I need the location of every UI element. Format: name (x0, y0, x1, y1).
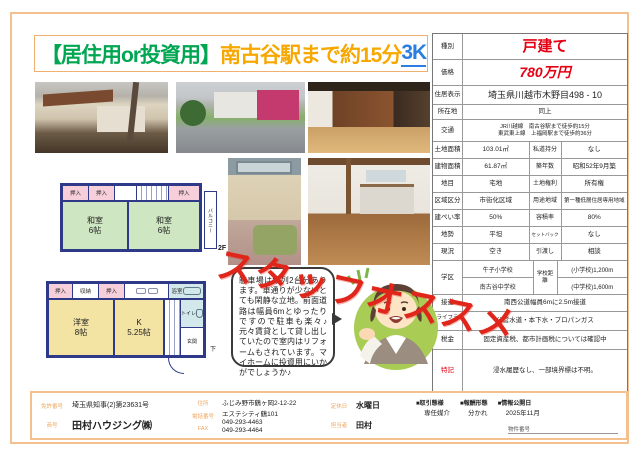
spec-status-label: 現況 (433, 244, 463, 260)
spec-zoning-value: 市街化区域 (463, 193, 530, 209)
spec-setback-value: なし (562, 227, 628, 243)
spec-far-label: 容積率 (530, 210, 562, 226)
floorplan-1f: 押入 収納 押入 浴室 洋室 8帖 K 5.25帖 (46, 281, 206, 358)
sink-icon (136, 288, 146, 294)
spec-land-label: 土地面積 (433, 142, 463, 158)
spec-address-value: 埼玉県川越市木野目498 - 10 (463, 86, 627, 104)
spec-location-label: 所在地 (433, 105, 463, 119)
company-label: 商号 (36, 421, 68, 429)
floor-shape (308, 127, 430, 153)
agency-address-line1: ふじみ野市鶴ヶ岡2-12-22 (222, 397, 322, 407)
agency-fax: 049-293-4464 (222, 427, 322, 434)
spec-road-share-value: なし (562, 142, 628, 158)
house-shape (214, 92, 258, 118)
spec-type-value: 戸建て (463, 34, 627, 59)
spec-handover-value: 相談 (562, 244, 628, 260)
pink-house-shape (257, 90, 299, 120)
title-station-segment: 南古谷駅まで約15分 (220, 39, 401, 69)
beam-shape (308, 158, 430, 165)
roof-shape (43, 90, 113, 107)
agency-left-values: 埼玉県知事(2)第23631号 田村ハウジング㈱ (68, 396, 188, 435)
photo-kitchen-dining (308, 158, 430, 265)
spec-coverage-value: 50% (463, 210, 530, 226)
spec-setback-label: セットバック (530, 227, 562, 243)
agency-right-labels: 定休日 担当者 (326, 396, 352, 435)
license-number: 埼玉県知事(2)第23631号 (72, 400, 184, 410)
spec-far-value: 80% (562, 210, 628, 226)
spec-age-label: 築年数 (530, 159, 562, 175)
closet-2f-2: 押入 (89, 186, 115, 200)
listing-title: 【居住用or投資用】南古谷駅まで約15分3K (34, 35, 428, 72)
agency-address-line2: エステシティ鶴101 (222, 408, 322, 418)
closet-2f-3: 押入 (169, 186, 199, 200)
spec-access-value: JR川越線 南古谷駅まで徒歩約15分 東武東上線 上福岡駅まで徒歩約36分 (463, 120, 627, 141)
closet-1f-2: 押入 (99, 284, 125, 298)
spec-school-distances: (小学校)1,200m (中学校)1,600m (558, 261, 628, 294)
bathtub-icon (183, 287, 201, 295)
ceiling-shape (308, 82, 430, 91)
spec-terrain-value: 平坦 (463, 227, 530, 243)
agency-mid-labels: 住所 電話番号 FAX (188, 396, 218, 435)
photo-street-view (176, 82, 305, 153)
kitchen-counter-1f (125, 284, 169, 298)
spec-school-dist-label: 学校距離 (534, 261, 558, 294)
spec-usearea-value: 第一種低層住居専用地域 (562, 193, 628, 209)
property-number-line: 物件番号 (508, 425, 618, 434)
stairs-2f (137, 186, 169, 200)
spec-building-value: 61.87㎡ (463, 159, 530, 175)
address-label: 住所 (188, 399, 218, 407)
agency-left-labels: 免許番号 商号 (36, 396, 68, 435)
post-shape (346, 158, 351, 214)
fax-label: FAX (188, 426, 218, 432)
toilet-icon (196, 309, 203, 318)
publish-date: ■情報公開日 2025年11月 (498, 398, 540, 417)
agency-right-values: 水曜日 田村 (352, 396, 416, 435)
photo-exterior-front (35, 82, 168, 153)
toilet-1f: トイレ (181, 300, 203, 328)
spec-land-value: 103.01㎡ (463, 142, 530, 158)
room-kitchen: K 5.25帖 (115, 300, 165, 355)
spec-road-share-label: 私道持分 (530, 142, 562, 158)
spec-access-label: 交通 (433, 120, 463, 141)
balcony-label: バルコニー (204, 191, 217, 249)
spec-landcat-label: 地目 (433, 176, 463, 192)
spec-handover-label: 引渡し (530, 244, 562, 260)
deal-type: ■取引態様 専任媒介 (416, 398, 450, 417)
spec-age-value: 昭和52年9月築 (562, 159, 628, 175)
stove-icon (148, 288, 158, 294)
staff-value: 田村 (356, 420, 412, 431)
tel-label: 電話番号 (188, 412, 218, 420)
license-label: 免許番号 (36, 402, 68, 410)
spec-zoning-label: 区域区分 (433, 193, 463, 209)
holiday-label: 定休日 (326, 402, 352, 410)
hall-2f (115, 186, 137, 200)
window-shape (236, 161, 292, 174)
spec-coverage-label: 建ぺい率 (433, 210, 463, 226)
agency-tel: 049-293-4463 (222, 419, 322, 426)
spec-notes-value: 浸水履歴なし、一部境界標は不明。 (463, 350, 627, 392)
spec-location-value: 同上 (463, 105, 627, 119)
bush-shape (180, 100, 206, 126)
hand-shape (359, 328, 375, 340)
spec-right-label: 土地権利 (530, 176, 562, 192)
spec-price-label: 価格 (433, 60, 463, 85)
spec-type-label: 種別 (433, 34, 463, 59)
title-usage-segment: 【居住用or投資用】 (41, 39, 220, 69)
kitchen-counter-shape (360, 184, 414, 214)
stairs-1f (165, 300, 181, 355)
spec-status-value: 空き (463, 244, 530, 260)
closet-2f-1: 押入 (63, 186, 89, 200)
agency-info-bar: 免許番号 商号 埼玉県知事(2)第23631号 田村ハウジング㈱ 住所 電話番号… (30, 391, 628, 440)
room-washitsu-2: 和室 6帖 (129, 202, 199, 249)
entrance-1f: 玄関 (181, 328, 203, 355)
spec-landcat-value: 宅地 (463, 176, 530, 192)
agency-mid-values: ふじみ野市鶴ヶ岡2-12-22 エステシティ鶴101 049-293-4463 … (218, 396, 326, 435)
spec-price-value: 780万円 (463, 60, 627, 85)
spec-right-value: 所有権 (562, 176, 628, 192)
company-name: 田村ハウジング㈱ (72, 417, 184, 432)
room-yoshitsu: 洋室 8帖 (49, 300, 115, 355)
kitchen-window-shape (366, 170, 406, 182)
wall-shape (97, 106, 145, 132)
storage-1f: 収納 (73, 284, 99, 298)
title-layout-segment: 3K (401, 41, 426, 67)
spec-usearea-label: 用途地域 (530, 193, 562, 209)
floorplan-2f: 押入 押入 押入 和室 6帖 和室 6帖 (60, 183, 202, 252)
room-washitsu-1: 和室 6帖 (63, 202, 129, 249)
flyer-page: 【居住用or投資用】南古谷駅まで約15分3K 押入 押入 押入 (0, 0, 640, 452)
closet-1f-1: 押入 (49, 284, 73, 298)
fee-type: ■報酬形態 分かれ (460, 398, 488, 417)
holiday-value: 水曜日 (356, 400, 412, 411)
stairs-down-label: 下 (210, 344, 216, 353)
photo-interior-room (308, 82, 430, 153)
staff-label: 担当者 (326, 421, 352, 429)
spec-building-label: 建物面積 (433, 159, 463, 175)
spec-address-label: 住居表示 (433, 86, 463, 104)
spec-terrain-label: 地勢 (433, 227, 463, 243)
bath-1f: 浴室 (169, 284, 203, 298)
